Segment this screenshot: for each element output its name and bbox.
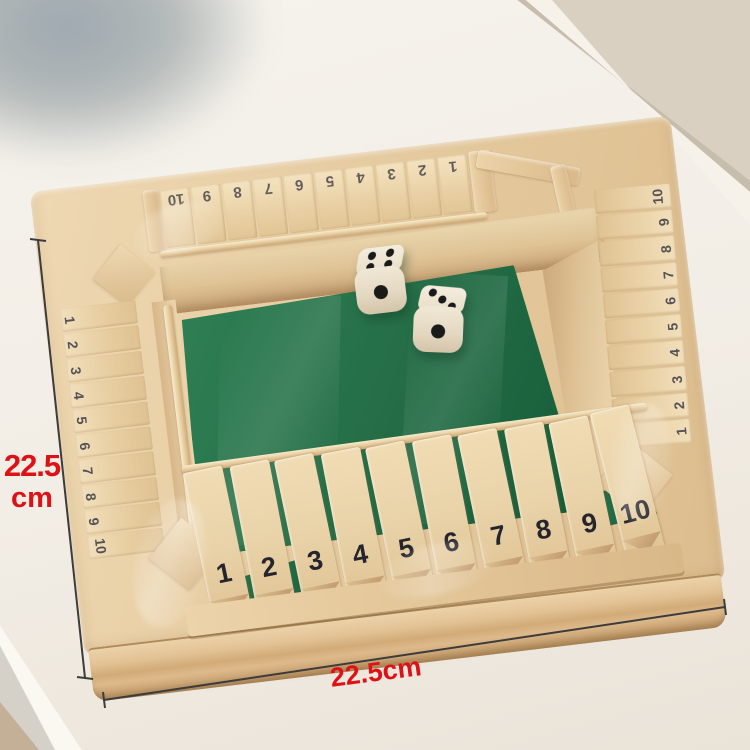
tile-top-5: 5 [314, 169, 350, 230]
die-pip [367, 251, 376, 260]
tile-number: 2 [65, 340, 82, 350]
tile-number: 5 [314, 171, 345, 191]
tile-number: 8 [521, 511, 566, 549]
height-dimension-unit: cm [0, 484, 64, 513]
tile-number: 8 [222, 182, 253, 202]
tile-number: 9 [86, 517, 103, 527]
tile-top-7: 7 [253, 176, 289, 237]
tile-number: 1 [438, 156, 469, 176]
tile-right-8: 8 [598, 236, 676, 266]
tile-right-10: 10 [594, 184, 672, 214]
height-dimension-value: 22.5 [0, 450, 64, 481]
tile-right-7: 7 [600, 262, 678, 292]
tile-number: 1 [62, 315, 79, 325]
tile-number: 1 [673, 427, 690, 436]
die-pip [386, 248, 395, 257]
tile-number: 1 [201, 554, 247, 593]
tile-number: 4 [338, 536, 383, 574]
tile-number: 10 [649, 188, 666, 205]
tile-number: 8 [83, 492, 100, 502]
tile-number: 6 [77, 441, 94, 451]
die-2 [412, 285, 465, 353]
tile-number: 10 [92, 538, 110, 555]
die-1 [351, 244, 409, 316]
tile-number: 3 [293, 542, 339, 581]
shut-the-box-board: 10987654321 12345678910 10987654321 1234… [30, 116, 732, 707]
tile-number: 4 [345, 167, 376, 187]
die-2-front-face [412, 305, 464, 353]
tile-number: 4 [71, 391, 88, 401]
tile-number: 2 [247, 549, 292, 587]
tile-top-8: 8 [222, 180, 258, 241]
tile-number: 7 [660, 270, 677, 279]
die-pip [428, 288, 438, 297]
tile-right-3: 3 [609, 366, 687, 396]
tile-right-9: 9 [596, 210, 674, 240]
tile-right-4: 4 [607, 340, 685, 370]
die-pip [437, 295, 447, 304]
tile-number: 9 [567, 504, 613, 543]
tile-number: 5 [74, 416, 91, 426]
tile-top-6: 6 [283, 172, 319, 233]
blurred-background [0, 0, 270, 166]
product-photo: 10987654321 12345678910 10987654321 1234… [0, 0, 750, 750]
tile-number: 3 [376, 163, 407, 183]
die-1-front-face [353, 264, 408, 316]
tile-right-6: 6 [603, 288, 681, 318]
tile-number: 3 [669, 375, 686, 384]
tile-top-3: 3 [376, 161, 412, 222]
tile-number: 9 [656, 218, 673, 227]
tile-number: 5 [664, 322, 681, 331]
tile-number: 7 [253, 178, 284, 198]
tile-top-4: 4 [345, 165, 381, 226]
tile-number: 3 [68, 365, 85, 375]
tile-right-5: 5 [605, 314, 683, 344]
tile-number: 2 [407, 160, 438, 180]
tile-number: 6 [284, 174, 315, 194]
tile-number: 4 [667, 348, 684, 357]
die-pip [373, 284, 389, 300]
tile-number: 8 [658, 244, 675, 253]
tile-number: 7 [80, 466, 97, 476]
tile-number: 6 [662, 296, 679, 305]
die-pip [431, 324, 446, 339]
tile-top-2: 2 [407, 158, 443, 219]
tile-number: 2 [671, 401, 688, 410]
